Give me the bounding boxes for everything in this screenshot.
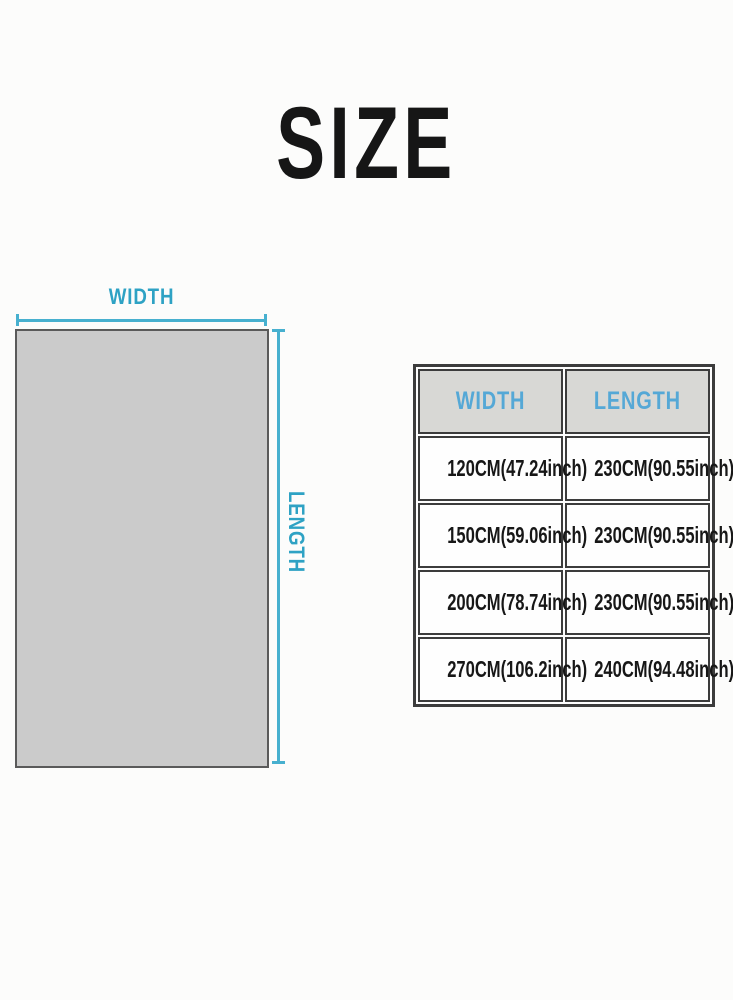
width-cell: 200CM(78.74inch): [418, 570, 563, 635]
column-header-width: WIDTH: [418, 369, 563, 434]
product-panel-rectangle: [15, 329, 269, 768]
table-row: 200CM(78.74inch) 230CM(90.55inch): [418, 570, 710, 635]
table-row: 150CM(59.06inch) 230CM(90.55inch): [418, 503, 710, 568]
page-title: SIZE: [0, 92, 733, 194]
width-cell: 120CM(47.24inch): [418, 436, 563, 501]
table-row: 270CM(106.2inch) 240CM(94.48inch): [418, 637, 710, 702]
length-line-bar: [277, 329, 280, 764]
table-header-row: WIDTH LENGTH: [418, 369, 710, 434]
size-table: WIDTH LENGTH 120CM(47.24inch) 230CM(90.5…: [413, 364, 715, 707]
length-line-bottom-cap: [272, 761, 285, 764]
width-cell: 270CM(106.2inch): [418, 637, 563, 702]
page-title-text: SIZE: [276, 92, 457, 194]
column-header-length: LENGTH: [565, 369, 710, 434]
width-line-right-cap: [264, 314, 267, 326]
width-dimension-label: WIDTH: [82, 284, 202, 310]
width-line-bar: [16, 319, 267, 322]
table-row: 120CM(47.24inch) 230CM(90.55inch): [418, 436, 710, 501]
length-dimension-label: LENGTH: [283, 491, 309, 573]
width-cell: 150CM(59.06inch): [418, 503, 563, 568]
width-dimension-line: [16, 314, 267, 326]
